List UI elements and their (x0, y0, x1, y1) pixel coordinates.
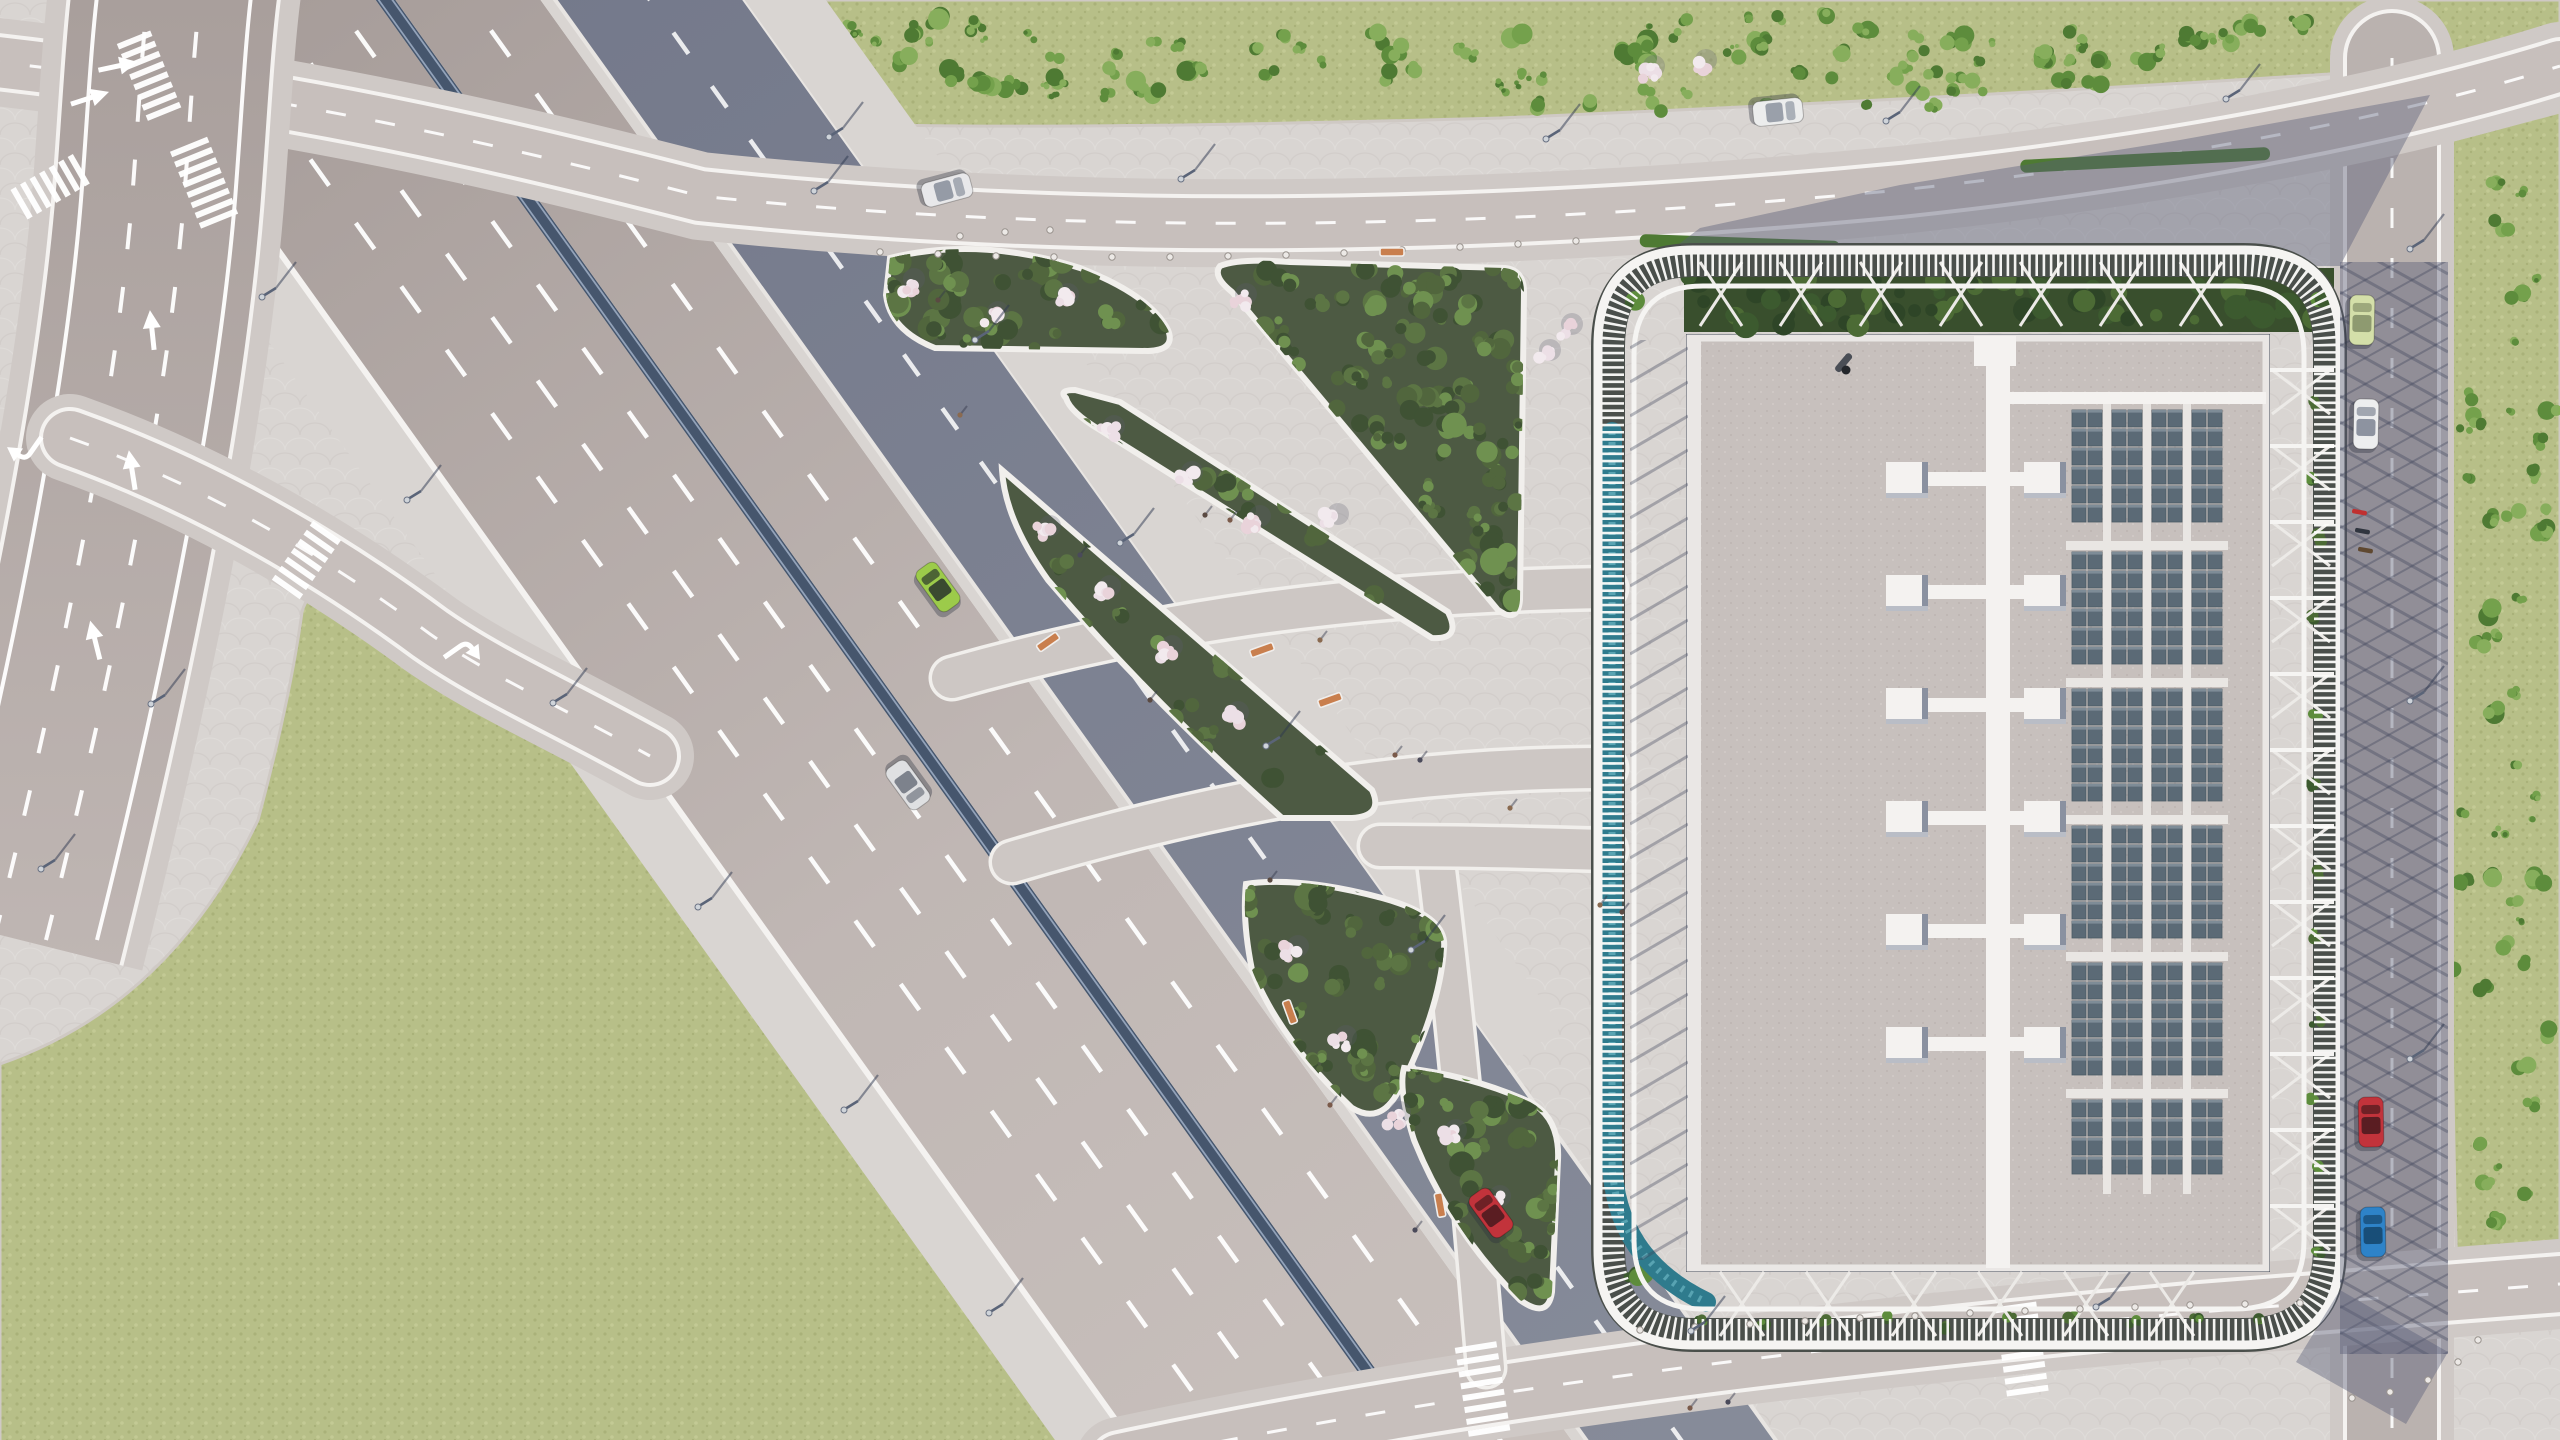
skylight (2024, 914, 2066, 950)
bench (1380, 248, 1404, 256)
car-red-east (2354, 1097, 2384, 1152)
skylight (2024, 575, 2066, 611)
skylight (1886, 462, 1928, 498)
car-lightgreen-east (2344, 295, 2374, 350)
car-white-north-road (1747, 92, 1804, 127)
skylight (1886, 575, 1928, 611)
skylight (2024, 462, 2066, 498)
car-blue-east (2356, 1207, 2386, 1262)
skylight (1886, 1027, 1928, 1063)
terminal-building (1686, 334, 2270, 1272)
site-plan-svg (0, 0, 2560, 1440)
skylight (2024, 688, 2066, 724)
aerial-site-render: aerial-site-plan-render (0, 0, 2560, 1440)
plaza-path-3 (1380, 846, 1606, 850)
skylight (1886, 688, 1928, 724)
car-white-east (2348, 399, 2378, 454)
skylight (1886, 914, 1928, 950)
skylight (2024, 1027, 2066, 1063)
skylight (2024, 801, 2066, 837)
skylight (1886, 801, 1928, 837)
